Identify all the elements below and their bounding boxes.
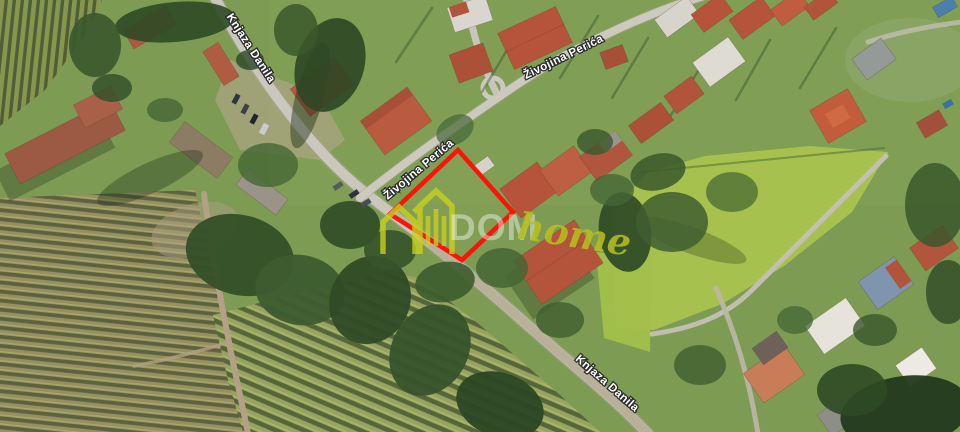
- map-screenshot: Knjaza Danila Živojina Perića Živojina P…: [0, 0, 960, 432]
- satellite-map[interactable]: Knjaza Danila Živojina Perića Živojina P…: [0, 0, 960, 432]
